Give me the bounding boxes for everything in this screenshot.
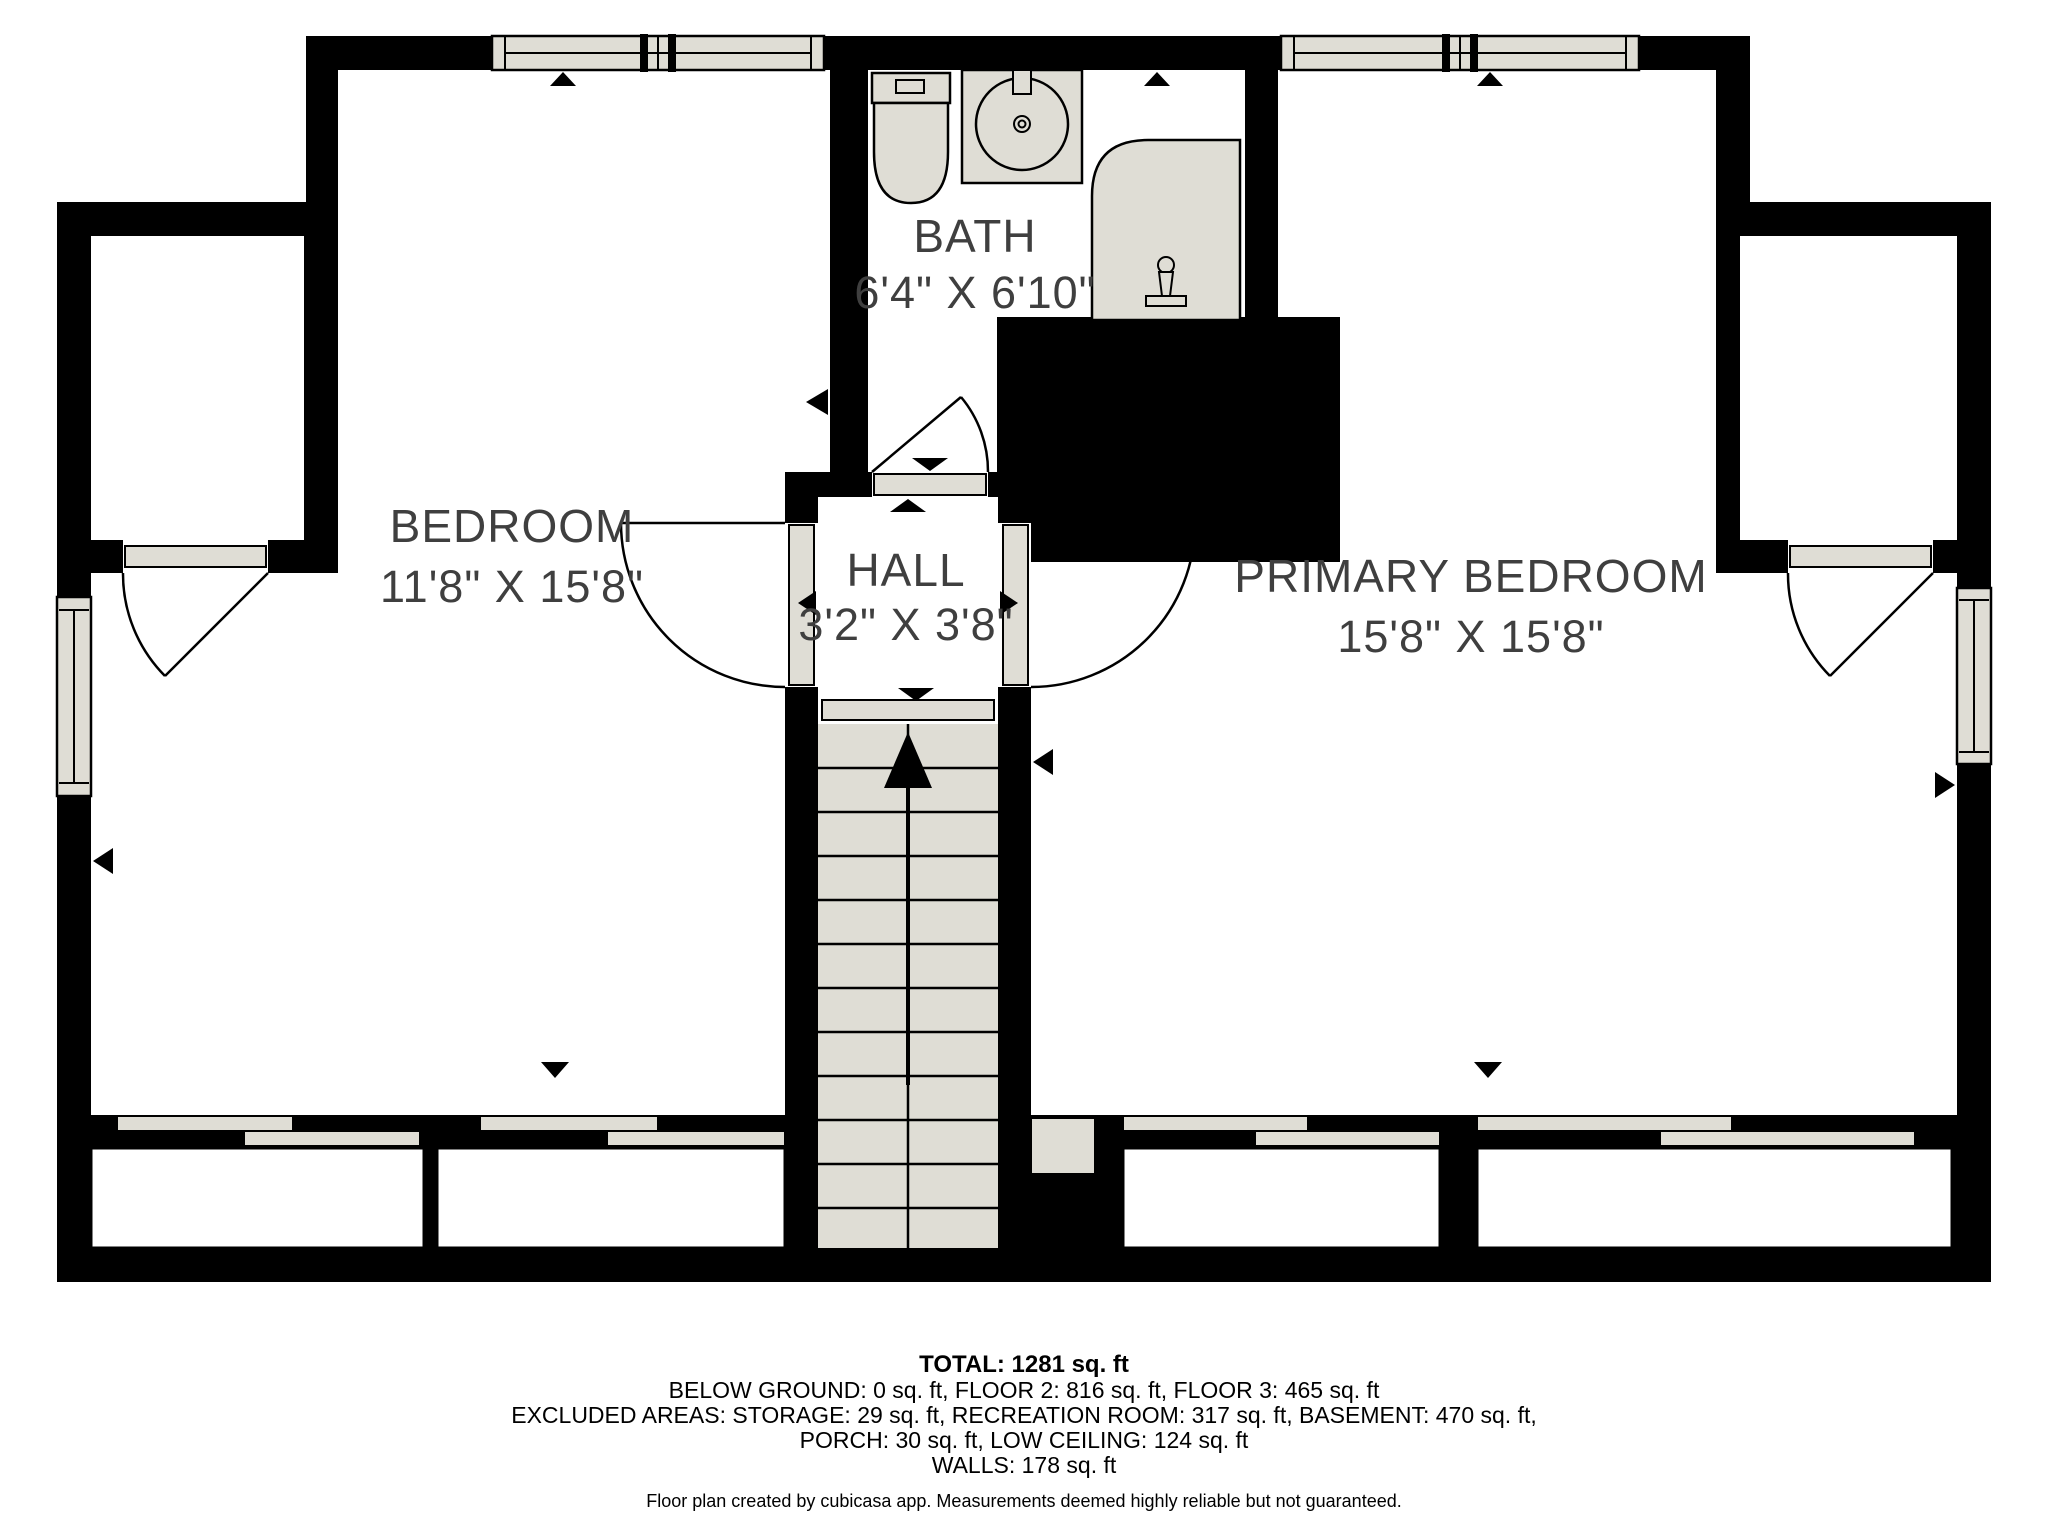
primary-top-window	[1281, 34, 1639, 72]
lower-level-outline-2	[437, 1148, 785, 1248]
primary-bedroom-dims: 15'8" X 15'8"	[1337, 611, 1604, 662]
footer-disclaimer: Floor plan created by cubicasa app. Meas…	[646, 1491, 1401, 1511]
footer-total: TOTAL: 1281 sq. ft	[919, 1351, 1129, 1378]
bath-label: BATH	[913, 210, 1036, 262]
primary-closet-floor	[1740, 236, 1957, 540]
lower-level-outline-4	[1477, 1148, 1952, 1248]
hall-label: HALL	[846, 544, 965, 596]
right-wall-window	[1957, 588, 1991, 764]
footer-excluded: EXCLUDED AREAS: STORAGE: 29 sq. ft, RECR…	[511, 1402, 1537, 1428]
shower-icon	[1092, 140, 1240, 320]
lower-level-outline-1	[91, 1148, 424, 1248]
primary-bedroom-label: PRIMARY BEDROOM	[1234, 550, 1707, 602]
bedroom-dims: 11'8" X 15'8"	[380, 561, 644, 612]
bedroom-label: BEDROOM	[390, 500, 635, 552]
sink-icon	[962, 70, 1082, 183]
hall-dims: 3'2" X 3'8"	[798, 599, 1013, 650]
toilet-icon	[872, 73, 950, 203]
lower-level-outline-3	[1123, 1148, 1440, 1248]
footer-porch: PORCH: 30 sq. ft, LOW CEILING: 124 sq. f…	[800, 1427, 1249, 1453]
stair-landing	[1031, 1118, 1095, 1174]
bath-dims: 6'4" X 6'10"	[854, 267, 1095, 318]
footer-floors: BELOW GROUND: 0 sq. ft, FLOOR 2: 816 sq.…	[669, 1377, 1380, 1403]
footer-walls: WALLS: 178 sq. ft	[932, 1452, 1117, 1478]
floor-plan-page: BEDROOM 11'8" X 15'8" BATH 6'4" X 6'10" …	[0, 0, 2048, 1536]
bedroom-top-window	[492, 34, 824, 72]
bedroom-closet-floor	[91, 236, 304, 540]
left-wall-window	[57, 597, 91, 796]
floor-plan-drawing: BEDROOM 11'8" X 15'8" BATH 6'4" X 6'10" …	[0, 0, 2048, 1536]
footer-summary: TOTAL: 1281 sq. ft BELOW GROUND: 0 sq. f…	[511, 1351, 1537, 1511]
